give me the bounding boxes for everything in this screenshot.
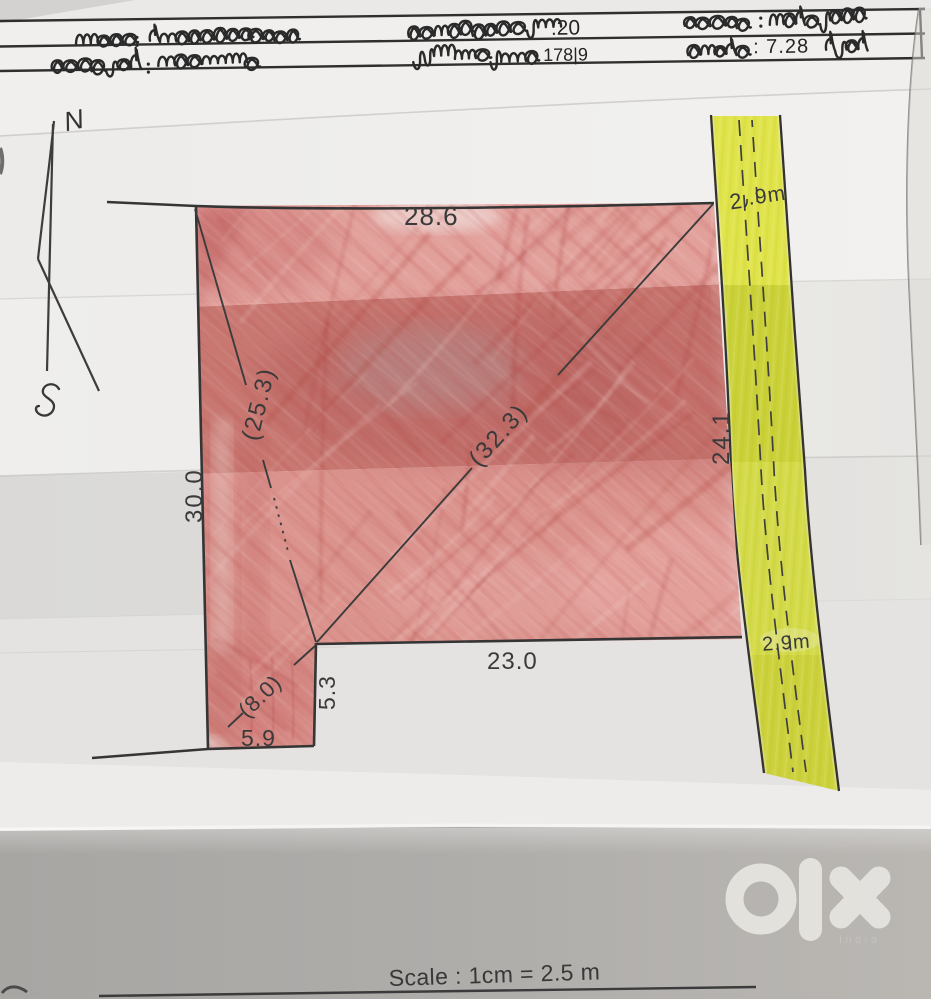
svg-text:5.3: 5.3 — [314, 675, 340, 710]
svg-text:India: India — [839, 934, 880, 946]
svg-text:2.9m: 2.9m — [761, 631, 811, 656]
svg-text:24.1: 24.1 — [708, 410, 735, 465]
svg-text:28.6: 28.6 — [404, 201, 459, 231]
svg-text:23.0: 23.0 — [487, 648, 538, 675]
svg-text::20: :20 — [551, 16, 581, 39]
svg-text:: 7.28: : 7.28 — [753, 35, 809, 58]
svg-text:178|9: 178|9 — [543, 44, 588, 65]
svg-text:5.9: 5.9 — [241, 725, 276, 751]
svg-text:30.0: 30.0 — [181, 468, 208, 523]
